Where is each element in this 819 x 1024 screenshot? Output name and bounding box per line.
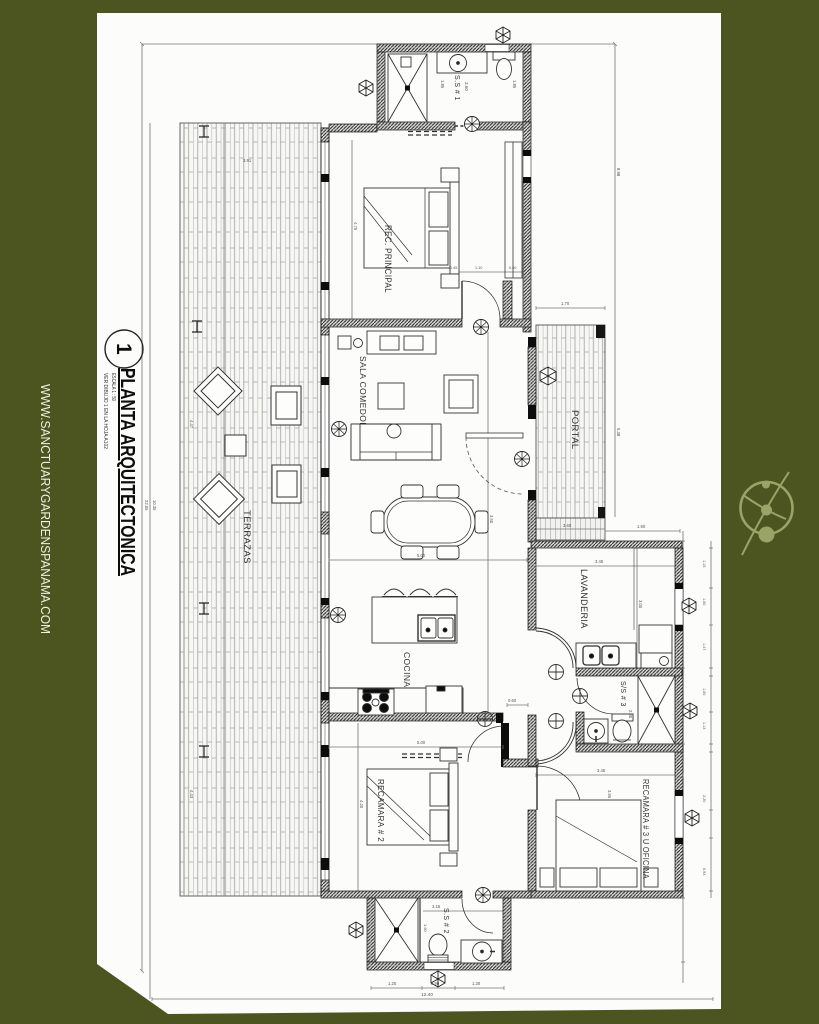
svg-text:4.75: 4.75	[353, 222, 358, 231]
svg-text:PLANTA ARQUITECTONICA: PLANTA ARQUITECTONICA	[116, 368, 138, 576]
svg-text:0.60: 0.60	[508, 698, 517, 703]
svg-text:ESCALA 1 : 50: ESCALA 1 : 50	[110, 373, 116, 401]
svg-text:RECAMARA # 2: RECAMARA # 2	[376, 779, 385, 842]
svg-text:5.00: 5.00	[417, 553, 426, 558]
svg-text:0.60: 0.60	[509, 266, 516, 270]
svg-text:0.93: 0.93	[702, 868, 706, 875]
svg-text:3.50: 3.50	[489, 515, 494, 524]
svg-text:1: 1	[112, 343, 135, 355]
svg-text:0.45: 0.45	[450, 266, 457, 270]
svg-text:1.85: 1.85	[512, 80, 517, 89]
svg-text:S.S # 1: S.S # 1	[453, 75, 460, 101]
svg-text:3.55: 3.55	[607, 790, 612, 799]
svg-text:TERRAZAS: TERRAZAS	[241, 510, 252, 564]
svg-text:4.43: 4.43	[189, 790, 194, 799]
svg-text:4.47: 4.47	[189, 420, 194, 429]
svg-text:1.30: 1.30	[472, 981, 481, 986]
svg-text:1.60: 1.60	[423, 924, 428, 933]
svg-text:3.15: 3.15	[432, 904, 441, 909]
svg-text:1.90: 1.90	[637, 524, 646, 529]
svg-text:1.85: 1.85	[440, 80, 445, 89]
svg-text:LAVANDERIA: LAVANDERIA	[579, 569, 589, 629]
svg-text:1.47: 1.47	[702, 643, 706, 650]
svg-text:22.05: 22.05	[144, 500, 149, 511]
svg-text:S/S # 3: S/S # 3	[619, 681, 626, 707]
svg-text:3.60: 3.60	[563, 523, 572, 528]
svg-text:8.98: 8.98	[616, 168, 621, 177]
svg-text:COCINA: COCINA	[402, 652, 412, 687]
svg-text:3.00: 3.00	[638, 600, 643, 609]
svg-text:1.60: 1.60	[702, 598, 706, 605]
svg-text:WWW.SANCTUARYGARDENSPANAMA.COM: WWW.SANCTUARYGARDENSPANAMA.COM	[38, 384, 53, 634]
svg-text:VER DIBUJO 1 EN LA HOJA A102: VER DIBUJO 1 EN LA HOJA A102	[102, 373, 108, 449]
svg-text:2.20: 2.20	[702, 795, 706, 802]
svg-text:3.45: 3.45	[597, 768, 606, 773]
svg-text:5.38: 5.38	[616, 428, 621, 437]
svg-text:SALA COMEDOR: SALA COMEDOR	[358, 356, 368, 429]
svg-text:1.15: 1.15	[702, 560, 706, 567]
svg-text:PORTAL: PORTAL	[569, 410, 580, 450]
svg-text:1.13: 1.13	[702, 722, 706, 729]
svg-text:4.20: 4.20	[359, 800, 364, 809]
svg-text:S.S # 2: S.S # 2	[442, 908, 449, 934]
svg-text:10.35: 10.35	[152, 500, 157, 511]
svg-text:0.90: 0.90	[431, 981, 440, 986]
svg-text:1.60: 1.60	[702, 688, 706, 695]
svg-text:RECAMARA # 3 U OFICINA: RECAMARA # 3 U OFICINA	[641, 779, 650, 879]
svg-text:1.25: 1.25	[388, 981, 397, 986]
svg-text:3.60: 3.60	[464, 82, 469, 91]
svg-text:12.40: 12.40	[421, 992, 433, 998]
svg-text:3.45: 3.45	[595, 559, 604, 564]
svg-text:1.10: 1.10	[475, 266, 482, 270]
svg-text:3.91: 3.91	[243, 158, 252, 163]
svg-text:5.00: 5.00	[417, 740, 426, 745]
svg-text:2.30: 2.30	[628, 710, 633, 719]
svg-text:REC. PRINCIPAL: REC. PRINCIPAL	[383, 225, 393, 293]
svg-text:1.70: 1.70	[561, 301, 570, 306]
